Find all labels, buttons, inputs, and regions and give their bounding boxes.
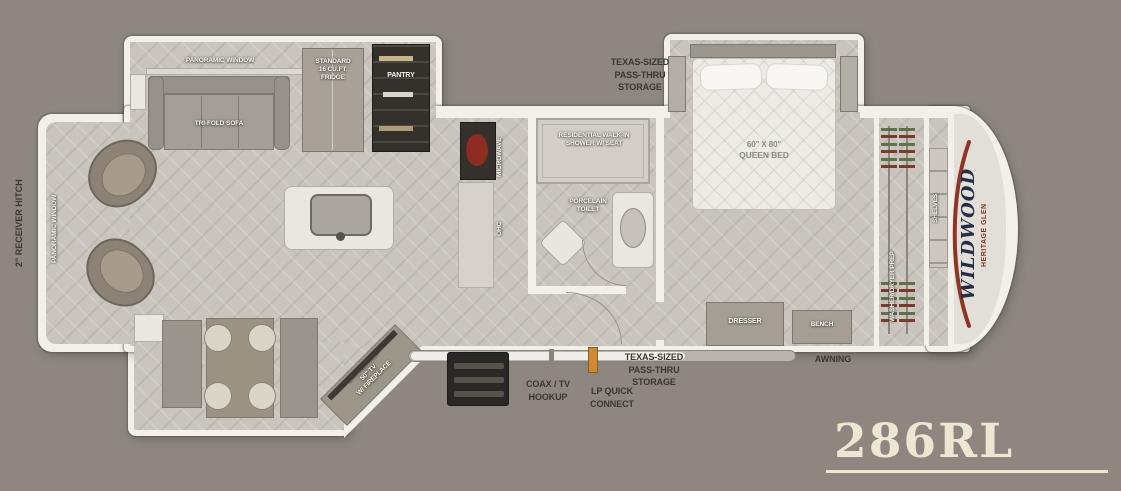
kitchen-top-wall (436, 106, 670, 118)
storage-bottom-line: PASS-THRU (612, 364, 696, 377)
pantry-label: PANTRY (374, 72, 428, 81)
microwave-label: MICROWAVE (496, 126, 509, 188)
bed-label: 60" X 80" QUEEN BED (692, 140, 836, 168)
step (454, 363, 504, 369)
storage-top-line: TEXAS-SIZED (592, 56, 688, 69)
coax-label-line: COAX / TV (513, 378, 583, 391)
pantry-item (379, 56, 413, 61)
bed-type-label: QUEEN BED (692, 150, 836, 161)
sofa-arm-left (148, 76, 164, 150)
sofa-label: TRI-FOLD SOFA (164, 120, 274, 129)
toilet-label-line: TOILET (540, 206, 636, 214)
lp-connect-marker (588, 347, 598, 373)
step (454, 391, 504, 397)
shower-label-line: SHOWER W/ SEAT (538, 140, 650, 148)
bed-size-label: 60" X 80" (692, 140, 836, 150)
closet-left-wall (874, 112, 879, 346)
dinette-chair (204, 324, 232, 352)
fridge-label-line: STANDARD (302, 58, 364, 66)
ohc-label: OHC (496, 212, 509, 246)
pantry-item (383, 92, 413, 97)
toilet-label: PORCELAIN TOILET (540, 198, 636, 218)
floorplan-canvas: 60" X 80" QUEEN BED WILDWOOD HERITAGE GL… (0, 0, 1121, 491)
model-number: 286RL (834, 414, 1014, 469)
coax-label: COAX / TV HOOKUP (513, 378, 583, 402)
storage-top-line: PASS-THRU (592, 69, 688, 82)
brand-series-label: HERITAGE GLEN (981, 150, 992, 320)
hangers (881, 128, 897, 172)
dresser-label: DRESSER (706, 318, 784, 328)
storage-top-label: TEXAS-SIZED PASS-THRU STORAGE (592, 56, 688, 98)
sofa-back (148, 76, 290, 94)
coax-label-line: HOOKUP (513, 391, 583, 404)
bath-bedroom-wall (656, 112, 664, 302)
step (454, 377, 504, 383)
bench-label: BENCH (792, 321, 852, 330)
range-burner (466, 134, 488, 166)
storage-bottom-line: TEXAS-SIZED (612, 351, 696, 364)
dinette-chair (248, 382, 276, 410)
brand-name-label: WILDWOOD (958, 136, 982, 332)
sofa-arm-right (274, 76, 290, 150)
lp-label-line: CONNECT (577, 398, 647, 411)
pantry-item (379, 126, 413, 131)
corner-table (134, 314, 164, 342)
kitchen-counter (458, 182, 494, 288)
entry-steps (447, 352, 509, 406)
dinette-chair (204, 382, 232, 410)
panoramic-window-top-label: PANORAMIC WINDOW (150, 57, 290, 66)
fridge-label-line: FRIDGE (302, 74, 364, 82)
coax-hookup-marker (549, 349, 554, 362)
storage-bottom-line: STORAGE (612, 376, 696, 389)
end-table (130, 74, 146, 110)
nightstand (840, 56, 858, 112)
storage-bottom-label: TEXAS-SIZED PASS-THRU STORAGE (612, 351, 696, 395)
fridge-label: STANDARD 16 CU.FT. FRIDGE (302, 58, 364, 94)
storage-top-line: STORAGE (592, 81, 688, 94)
kitchen-bath-wall (528, 112, 536, 294)
panoramic-window-side-label: PANORAMIC WINDOW (51, 180, 64, 278)
toilet-label-line: PORCELAIN (540, 198, 636, 206)
wardrobe-label: WASHER/DRYER PREP (889, 234, 902, 340)
hitch-label: 2" RECEIVER HITCH (14, 168, 32, 278)
pillow (766, 63, 829, 91)
pillow (700, 63, 763, 91)
sink-faucet (336, 232, 345, 241)
hangers (899, 128, 915, 172)
shelves-label: SHELVES (932, 158, 944, 258)
model-underline (826, 470, 1108, 473)
shower-label-line: RESIDENTIAL WALK-IN (538, 132, 650, 140)
island-sink (310, 194, 372, 236)
dinette-chair (248, 324, 276, 352)
dinette-hutch (162, 320, 202, 408)
dinette-cabinet (280, 318, 318, 418)
headboard (690, 44, 836, 58)
shower-label: RESIDENTIAL WALK-IN SHOWER W/ SEAT (538, 132, 650, 154)
awning-label: AWNING (798, 354, 868, 365)
